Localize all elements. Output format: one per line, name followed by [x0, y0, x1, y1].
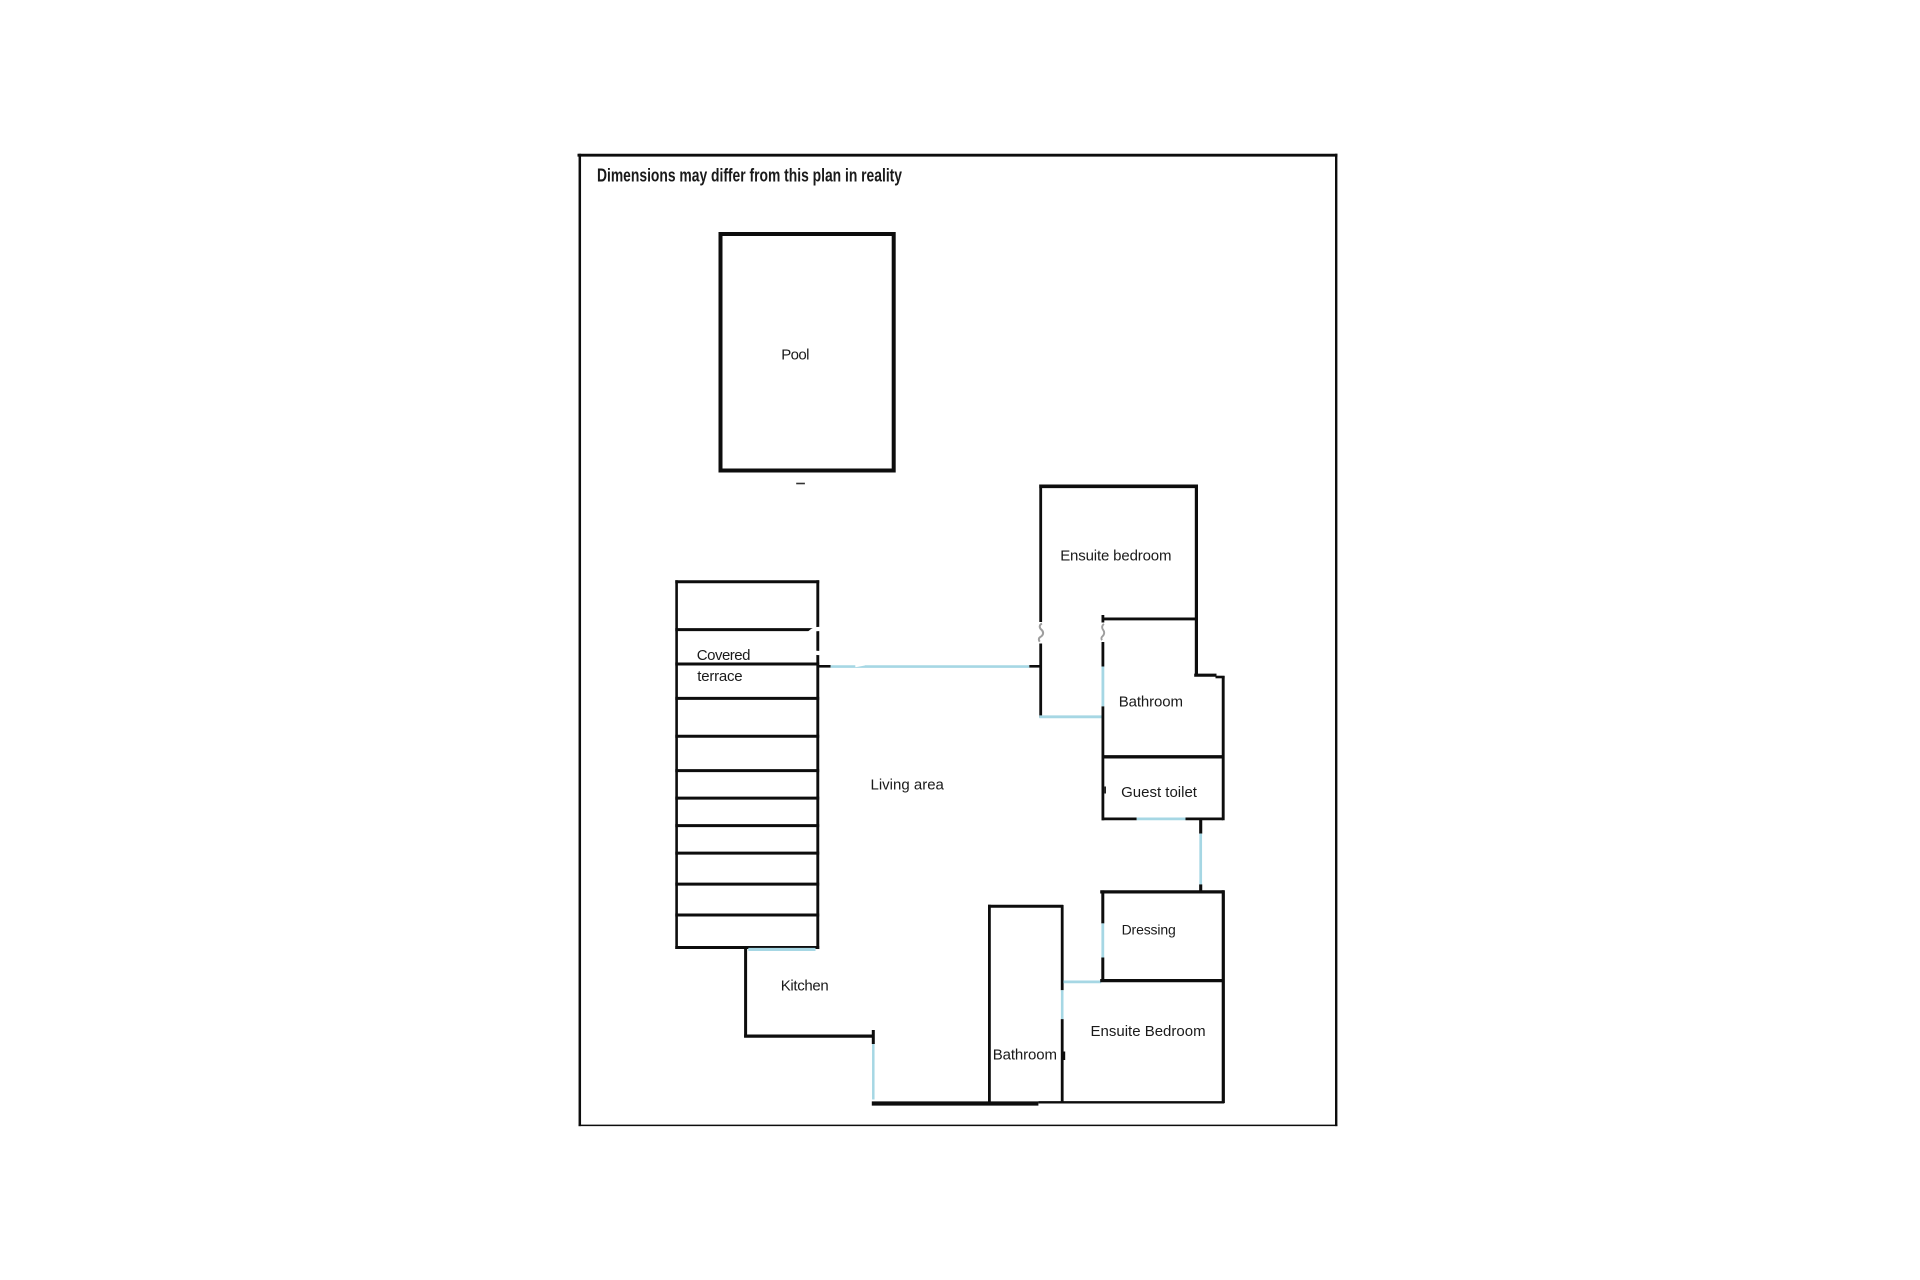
- svg-text:Bathroom: Bathroom: [993, 1046, 1057, 1063]
- svg-text:Covered: Covered: [697, 647, 750, 664]
- svg-text:Dressing: Dressing: [1122, 922, 1176, 938]
- svg-text:Ensuite bedroom: Ensuite bedroom: [1060, 547, 1171, 564]
- svg-text:Living area: Living area: [871, 777, 945, 794]
- svg-text:Ensuite Bedroom: Ensuite Bedroom: [1091, 1023, 1206, 1040]
- svg-text:terrace: terrace: [697, 668, 742, 685]
- svg-text:Pool: Pool: [781, 347, 809, 364]
- svg-text:Bathroom: Bathroom: [1119, 694, 1183, 711]
- svg-text:Kitchen: Kitchen: [781, 977, 829, 994]
- svg-text:Dimensions may differ from thi: Dimensions may differ from this plan in …: [597, 166, 902, 186]
- svg-text:Guest toilet: Guest toilet: [1121, 784, 1198, 801]
